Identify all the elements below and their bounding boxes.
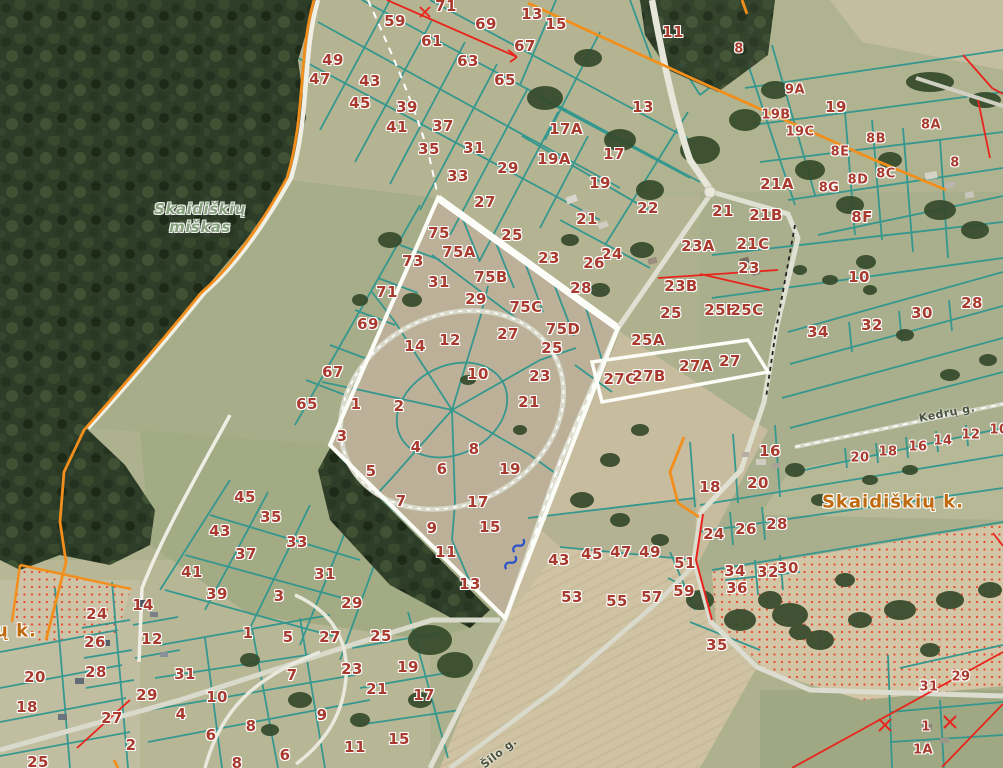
map-canvas[interactable]: 7159696167634947654345394137353133292713…: [0, 0, 1003, 768]
map-layers: [0, 0, 1003, 768]
